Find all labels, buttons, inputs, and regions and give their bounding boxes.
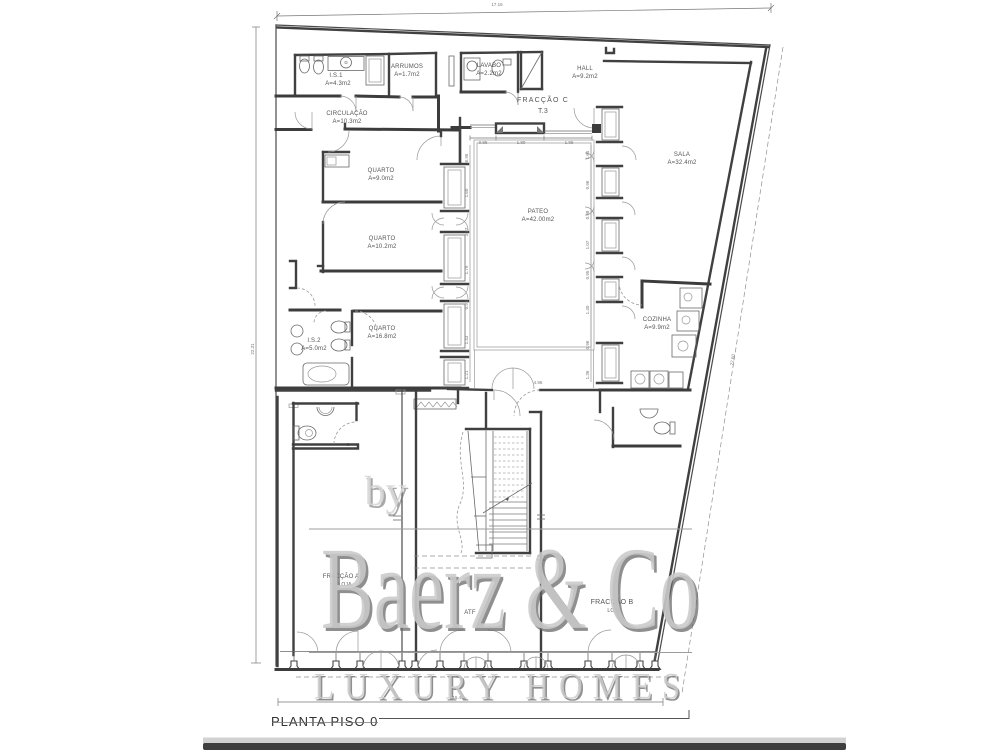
svg-text:1.07: 1.07 <box>585 240 590 249</box>
svg-text:A=10.2m2: A=10.2m2 <box>367 244 397 250</box>
svg-text:A=2.2m2: A=2.2m2 <box>476 71 502 77</box>
svg-text:QUARTO: QUARTO <box>369 326 396 332</box>
svg-text:A=1.7m2: A=1.7m2 <box>394 72 420 78</box>
svg-text:1.36: 1.36 <box>585 370 590 379</box>
svg-text:FRACÇÃO C: FRACÇÃO C <box>517 95 569 104</box>
svg-text:0.98: 0.98 <box>585 210 590 219</box>
svg-text:22.31: 22.31 <box>250 343 255 355</box>
svg-text:A=16.8m2: A=16.8m2 <box>367 334 397 340</box>
svg-text:17.16: 17.16 <box>491 2 503 7</box>
svg-text:COZINHA: COZINHA <box>643 317 671 323</box>
svg-text:A=9.0m2: A=9.0m2 <box>368 176 394 182</box>
svg-text:T.3: T.3 <box>538 108 548 115</box>
svg-text:PATEO: PATEO <box>528 209 549 215</box>
svg-text:I.S.1: I.S.1 <box>329 73 343 79</box>
svg-text:1.60: 1.60 <box>464 188 469 197</box>
svg-text:0.95: 0.95 <box>585 270 590 279</box>
svg-text:0.91: 0.91 <box>464 300 469 309</box>
svg-text:A=4.3m2: A=4.3m2 <box>325 81 351 87</box>
svg-text:PLANTA PISO 0: PLANTA PISO 0 <box>271 714 378 729</box>
svg-text:SALA: SALA <box>674 152 690 158</box>
svg-text:QUARTO: QUARTO <box>368 168 395 174</box>
svg-text:Baerz & Co: Baerz & Co <box>321 523 699 654</box>
svg-text:LAVABO: LAVABO <box>477 63 501 69</box>
svg-text:1.40: 1.40 <box>585 305 590 314</box>
svg-text:ARRUMOS: ARRUMOS <box>391 64 423 70</box>
svg-text:1.43: 1.43 <box>464 335 469 344</box>
svg-text:0.96: 0.96 <box>585 180 590 189</box>
svg-text:4.95: 4.95 <box>534 380 543 385</box>
svg-text:by: by <box>365 469 407 515</box>
svg-text:A=32.4m2: A=32.4m2 <box>667 160 697 166</box>
svg-text:0.96: 0.96 <box>585 340 590 349</box>
svg-text:6.95: 6.95 <box>464 153 469 162</box>
svg-text:A=10.3m2: A=10.3m2 <box>332 119 362 125</box>
svg-text:A=42.00m2: A=42.00m2 <box>522 217 555 223</box>
svg-text:0.86: 0.86 <box>479 140 488 145</box>
svg-text:1.80: 1.80 <box>517 140 526 145</box>
svg-text:A=9.2m2: A=9.2m2 <box>572 74 598 80</box>
svg-text:1.21: 1.21 <box>464 370 469 379</box>
svg-text:LUXURY HOMES: LUXURY HOMES <box>314 667 690 708</box>
svg-text:HALL: HALL <box>577 66 593 72</box>
svg-text:QUARTO: QUARTO <box>369 236 396 242</box>
svg-text:1.65: 1.65 <box>585 150 590 159</box>
svg-text:A=5.0m2: A=5.0m2 <box>301 346 327 352</box>
svg-text:A=9.9m2: A=9.9m2 <box>644 325 670 331</box>
svg-text:I.S.2: I.S.2 <box>307 338 321 344</box>
svg-text:CIRCULAÇÃO: CIRCULAÇÃO <box>326 110 367 117</box>
svg-text:1.96: 1.96 <box>565 140 574 145</box>
svg-text:1.79: 1.79 <box>464 265 469 274</box>
svg-text:3.27: 3.27 <box>464 227 469 236</box>
